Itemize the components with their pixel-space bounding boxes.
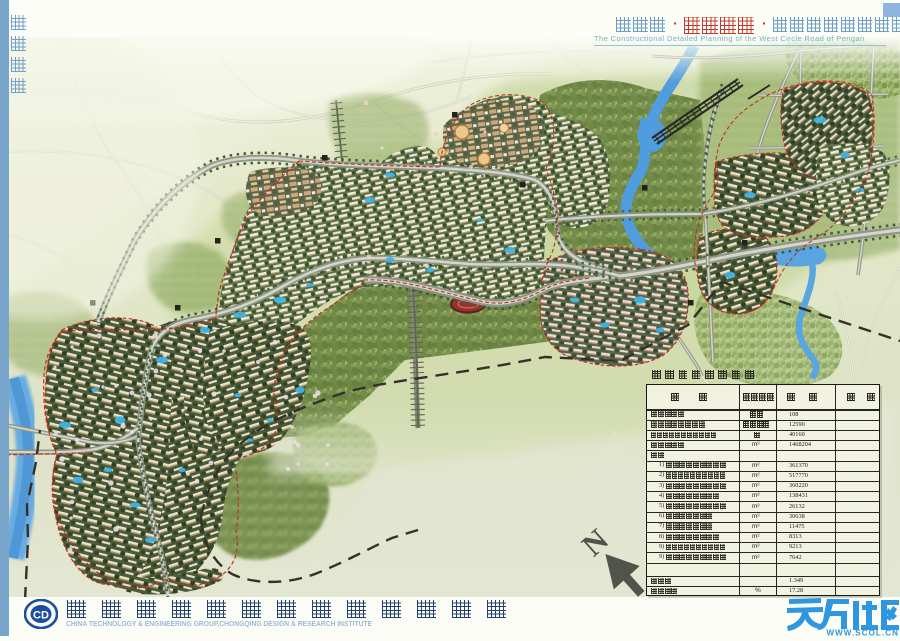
svg-text:CD: CD	[33, 610, 49, 622]
svg-text:WWW.SCOL.CN: WWW.SCOL.CN	[826, 629, 899, 637]
